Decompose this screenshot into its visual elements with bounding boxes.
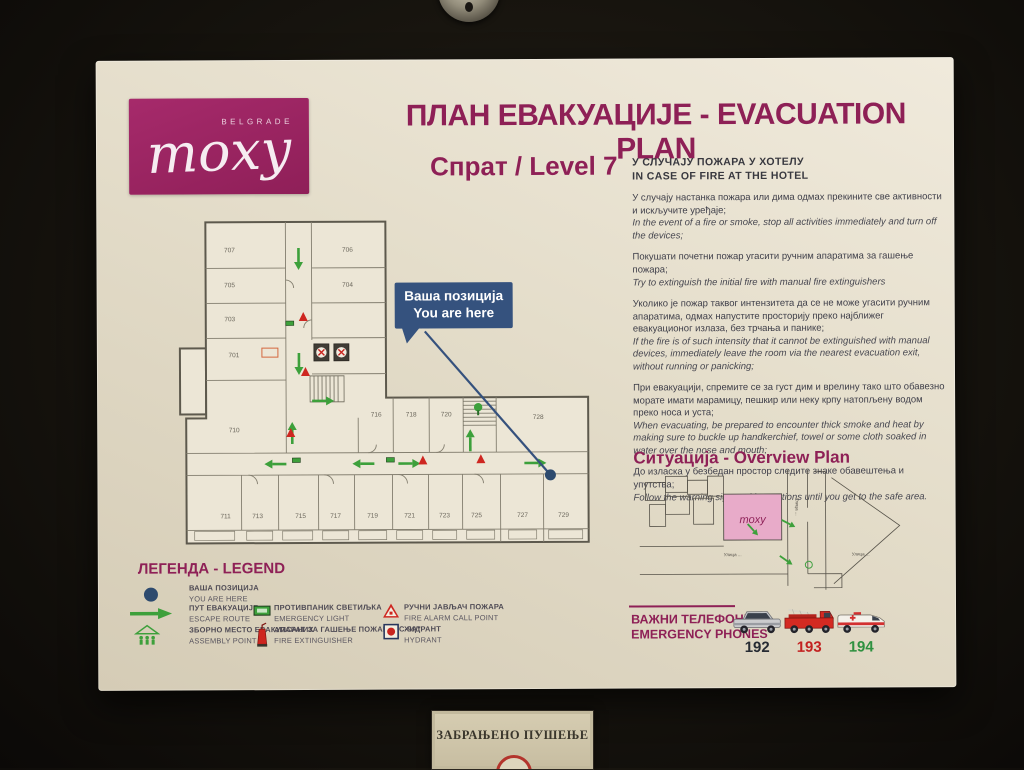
floor-plan: 707 705 703 701 710 706 704 716 718 720 … bbox=[177, 219, 596, 561]
instruction-paragraph: У случају настанка пожара или дима одмах… bbox=[632, 192, 945, 243]
room-number: 704 bbox=[342, 282, 353, 289]
street-label: Улица ... bbox=[795, 498, 800, 516]
overview-assembly-icon bbox=[805, 561, 812, 568]
room-number: 715 bbox=[295, 513, 306, 520]
instructions-heading-en: IN CASE OF FIRE AT THE HOTEL bbox=[632, 168, 945, 184]
overview-plan: moxy Улица ... Улица ... Улица ... bbox=[635, 467, 916, 598]
room-number: 703 bbox=[224, 316, 235, 323]
legend-item: ХИДРАНТHYDRANT bbox=[404, 624, 442, 645]
room-number: 729 bbox=[558, 512, 569, 519]
you-are-here-dot bbox=[545, 469, 556, 480]
evacuation-plan-sign: BELGRADE moxy ПЛАН ЕВАКУАЦИЈЕ - EVACUATI… bbox=[96, 57, 957, 691]
no-smoking-text: ЗАБРАЊЕНО ПУШЕЊЕ bbox=[432, 728, 593, 743]
phone-entry: 194 bbox=[835, 605, 887, 655]
floor-level-label: Спрат / Level 7 bbox=[430, 151, 618, 183]
room-number: 721 bbox=[404, 512, 415, 519]
room-number: 701 bbox=[228, 352, 239, 359]
legend-item: ВАША ПОЗИЦИЈАYOU ARE HERE bbox=[189, 583, 259, 604]
emergency-vehicles: 192 193 bbox=[731, 605, 887, 656]
wall-photo: { "colors": { "accent": "#8e2056", "logo… bbox=[0, 0, 1024, 768]
room-number: 725 bbox=[471, 512, 482, 519]
room-number: 719 bbox=[367, 513, 378, 520]
room-number: 716 bbox=[371, 412, 382, 419]
fire-alarm-call-point-icon bbox=[382, 603, 400, 619]
no-smoking-plaque: ЗАБРАЊЕНО ПУШЕЊЕ bbox=[431, 710, 594, 770]
hydrant-icon bbox=[383, 624, 399, 640]
overview-heading: Ситуација - Overview Plan bbox=[633, 448, 850, 469]
fire-extinguisher-icon bbox=[256, 621, 268, 648]
wall-lock-fixture bbox=[438, 0, 500, 22]
room-number: 728 bbox=[533, 414, 544, 421]
room-number: 707 bbox=[224, 247, 235, 254]
instructions-heading-sr: У СЛУЧАЈУ ПОЖАРА У ХОТЕЛУ bbox=[632, 154, 945, 170]
escape-route-icon bbox=[128, 607, 174, 621]
street-label: Улица ... bbox=[852, 552, 870, 557]
assembly-point-icon bbox=[134, 624, 160, 648]
phone-entry: 192 bbox=[731, 606, 783, 656]
legend-item: РУЧНИ ЈАВЉАЧ ПОЖАРАFIRE ALARM CALL POINT bbox=[404, 602, 504, 623]
phone-number-police: 192 bbox=[745, 639, 770, 656]
instruction-paragraph: Уколико је пожар таквог интензитета да с… bbox=[633, 297, 946, 374]
room-number: 727 bbox=[517, 512, 528, 519]
instruction-paragraph: При евакуацији, спремите се за густ дим … bbox=[633, 381, 946, 458]
callout-line-en: You are here bbox=[413, 305, 494, 320]
room-number: 711 bbox=[220, 513, 231, 520]
legend-heading: ЛЕГЕНДА - LEGEND bbox=[138, 560, 285, 578]
police-car-icon bbox=[731, 606, 783, 636]
room-number: 717 bbox=[330, 513, 341, 520]
street-label: Улица ... bbox=[724, 552, 742, 557]
moxy-logo: BELGRADE moxy bbox=[129, 98, 309, 195]
moxy-building-label: moxy bbox=[739, 514, 767, 526]
phone-number-ambulance: 194 bbox=[849, 638, 874, 655]
callout-line-sr: Ваша позиција bbox=[404, 288, 503, 303]
fire-truck-icon bbox=[783, 606, 835, 636]
phone-entry: 193 bbox=[783, 606, 835, 656]
you-are-here-dot-icon bbox=[144, 588, 158, 602]
logo-brand-script: moxy bbox=[128, 117, 310, 187]
instruction-paragraph: Покушати почетни пожар угасити ручним ап… bbox=[632, 251, 945, 290]
room-number: 705 bbox=[224, 282, 235, 289]
room-number: 706 bbox=[342, 247, 353, 254]
phones-divider bbox=[629, 605, 735, 607]
building-outline bbox=[179, 221, 588, 544]
legend-item: ПРОТИВПАНИК СВЕТИЉКАEMERGENCY LIGHT bbox=[274, 603, 382, 624]
ambulance-icon bbox=[835, 605, 887, 635]
room-number: 710 bbox=[229, 427, 240, 434]
room-number: 720 bbox=[441, 411, 452, 418]
emergency-light-icon bbox=[253, 605, 271, 616]
room-number: 718 bbox=[406, 411, 417, 418]
lock-keyhole bbox=[465, 2, 473, 12]
room-number: 723 bbox=[439, 512, 450, 519]
room-number: 713 bbox=[252, 513, 263, 520]
legend-item: ПУТ ЕВАКУАЦИЈЕESCAPE ROUTE bbox=[189, 603, 258, 624]
phone-number-fire: 193 bbox=[797, 639, 822, 656]
